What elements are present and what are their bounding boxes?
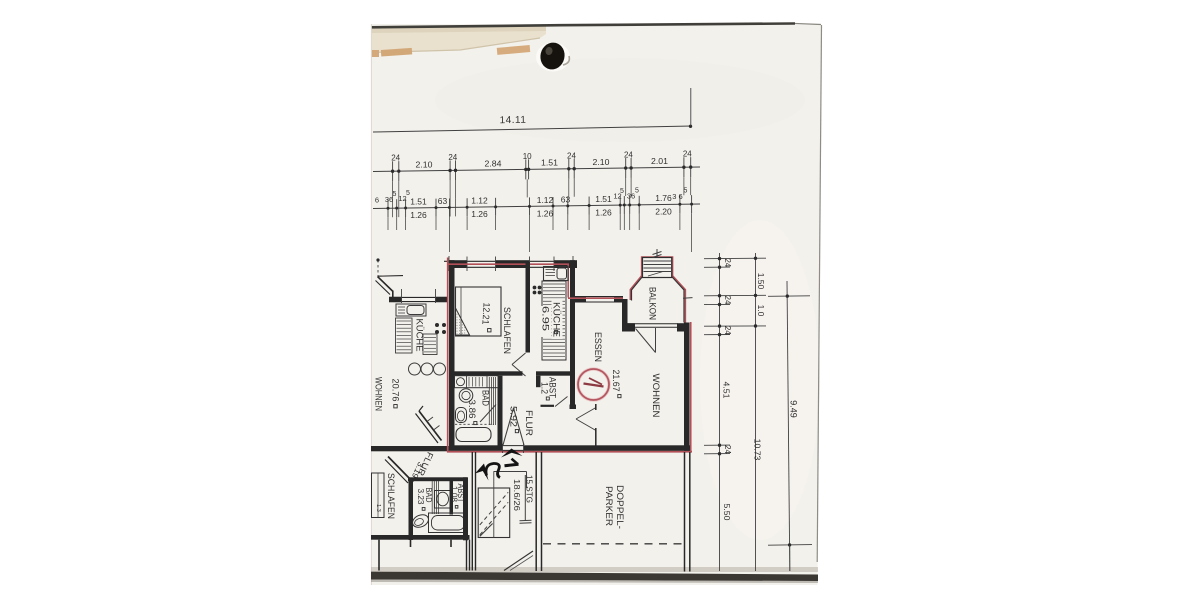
svg-text:5: 5 <box>620 188 624 195</box>
svg-text:5.92: 5.92 <box>509 406 519 427</box>
svg-text:24: 24 <box>723 258 732 267</box>
svg-text:1.12: 1.12 <box>471 196 488 206</box>
svg-text:5.50: 5.50 <box>722 504 732 521</box>
svg-text:1.50: 1.50 <box>756 273 766 290</box>
svg-text:1.26: 1.26 <box>410 210 427 220</box>
svg-text:1.76: 1.76 <box>655 193 672 203</box>
svg-text:4.51: 4.51 <box>722 382 732 399</box>
svg-text:WOHNEN: WOHNEN <box>374 377 384 411</box>
svg-text:1.26: 1.26 <box>537 208 554 218</box>
svg-text:SCHLAFEN: SCHLAFEN <box>502 307 512 354</box>
svg-text:ESSEN: ESSEN <box>593 332 603 362</box>
svg-text:WOHNEN: WOHNEN <box>651 374 661 418</box>
svg-text:1.51: 1.51 <box>410 197 427 207</box>
svg-text:20.76: 20.76 <box>391 379 401 402</box>
svg-text:1.0: 1.0 <box>756 305 766 317</box>
svg-text:12.21: 12.21 <box>480 302 491 324</box>
svg-text:FLUR: FLUR <box>524 410 534 436</box>
svg-text:3 6: 3 6 <box>672 192 682 201</box>
svg-text:SCHLAFEN: SCHLAFEN <box>386 473 396 519</box>
svg-text:1.26: 1.26 <box>471 209 488 219</box>
svg-text:24: 24 <box>624 151 633 160</box>
svg-text:1.12: 1.12 <box>537 195 554 205</box>
svg-text:24: 24 <box>683 150 692 159</box>
svg-text:6.95: 6.95 <box>541 306 551 331</box>
svg-text:3.86: 3.86 <box>467 400 477 419</box>
svg-text:1.3: 1.3 <box>375 504 381 512</box>
svg-text:24: 24 <box>723 296 732 305</box>
svg-text:KÜCHE: KÜCHE <box>415 319 425 352</box>
svg-text:10: 10 <box>523 152 532 161</box>
svg-text:DOPPEL-: DOPPEL- <box>614 485 625 529</box>
svg-text:1.2: 1.2 <box>540 382 550 394</box>
svg-text:14.11: 14.11 <box>500 115 527 126</box>
svg-text:KÜCHE: KÜCHE <box>552 302 562 337</box>
svg-text:5: 5 <box>406 190 410 197</box>
svg-text:9.49: 9.49 <box>789 400 799 418</box>
svg-text:1.08: 1.08 <box>450 486 459 503</box>
svg-text:63: 63 <box>438 196 448 206</box>
svg-text:6: 6 <box>375 196 379 205</box>
svg-text:2.84: 2.84 <box>485 158 502 168</box>
svg-text:BALKON: BALKON <box>648 287 658 320</box>
svg-text:24: 24 <box>567 151 576 160</box>
svg-text:24: 24 <box>448 153 457 162</box>
svg-text:5: 5 <box>635 188 639 195</box>
svg-text:2.01: 2.01 <box>651 156 668 166</box>
svg-text:BAD: BAD <box>481 390 491 406</box>
svg-text:15 STG: 15 STG <box>525 475 535 503</box>
svg-text:24: 24 <box>723 445 732 454</box>
svg-text:2.20: 2.20 <box>655 207 672 217</box>
svg-text:18.6/26: 18.6/26 <box>512 479 522 511</box>
svg-text:5: 5 <box>393 191 397 198</box>
svg-text:10.73: 10.73 <box>753 439 763 461</box>
svg-text:1.51: 1.51 <box>541 158 558 168</box>
svg-text:1.26: 1.26 <box>595 208 612 218</box>
svg-text:PARKER: PARKER <box>603 486 614 526</box>
svg-text:1.51: 1.51 <box>595 194 612 204</box>
svg-text:21.67: 21.67 <box>611 370 621 392</box>
svg-text:24: 24 <box>391 154 400 163</box>
svg-text:2.10: 2.10 <box>416 159 433 169</box>
svg-text:3.23: 3.23 <box>416 489 425 505</box>
svg-text:2.10: 2.10 <box>593 157 610 167</box>
svg-text:24: 24 <box>723 326 732 335</box>
